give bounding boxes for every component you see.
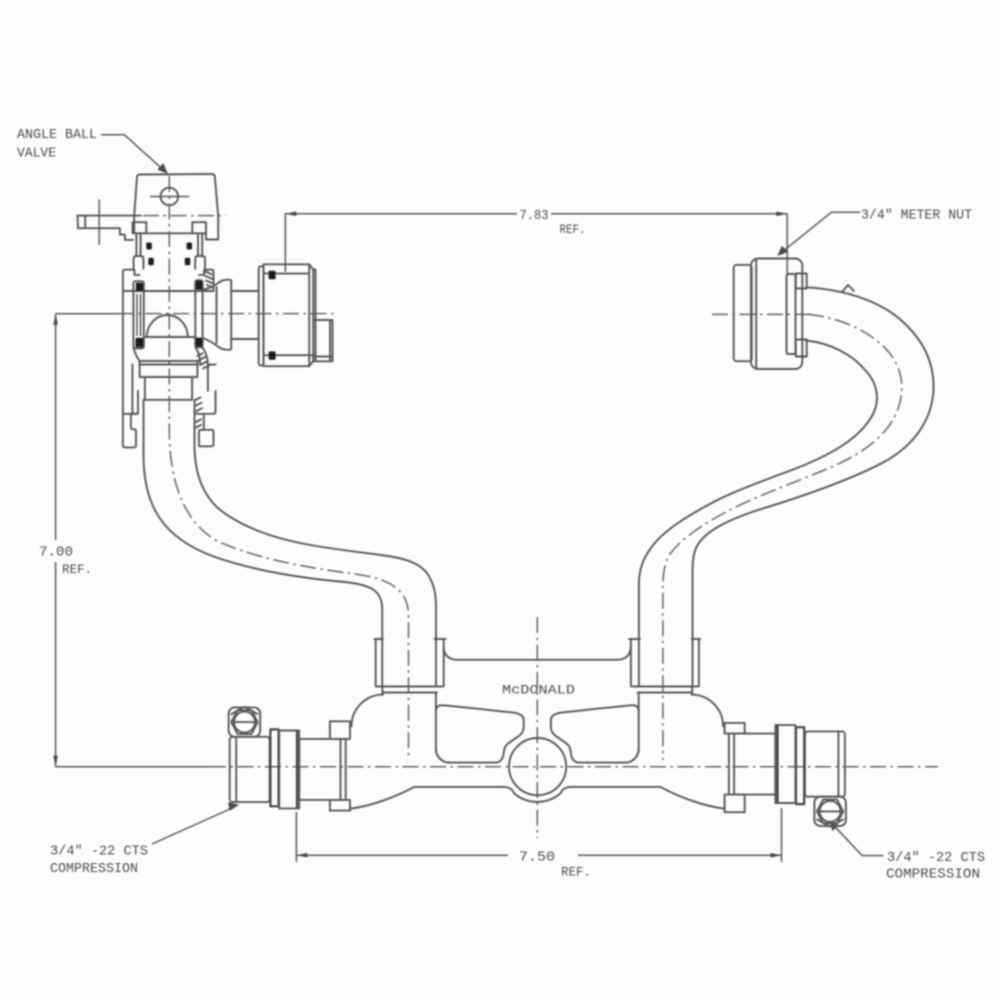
svg-text:3/4" -22 CTS: 3/4" -22 CTS xyxy=(887,850,985,866)
svg-text:COMPRESSION: COMPRESSION xyxy=(50,861,138,877)
svg-text:7.83: 7.83 xyxy=(520,209,549,224)
svg-text:VALVE: VALVE xyxy=(17,146,56,162)
svg-text:REF.: REF. xyxy=(560,222,586,237)
svg-text:REF.: REF. xyxy=(62,562,92,577)
svg-text:ANGLE BALL: ANGLE BALL xyxy=(17,127,97,143)
svg-text:3/4" METER NUT: 3/4" METER NUT xyxy=(861,208,972,224)
svg-text:REF.: REF. xyxy=(561,865,591,880)
svg-text:COMPRESSION: COMPRESSION xyxy=(886,867,980,883)
svg-text:7.00: 7.00 xyxy=(39,546,73,561)
svg-text:3/4" -22 CTS: 3/4" -22 CTS xyxy=(50,844,148,860)
svg-text:McDONALD: McDONALD xyxy=(502,683,575,697)
svg-text:7.50: 7.50 xyxy=(519,851,555,866)
